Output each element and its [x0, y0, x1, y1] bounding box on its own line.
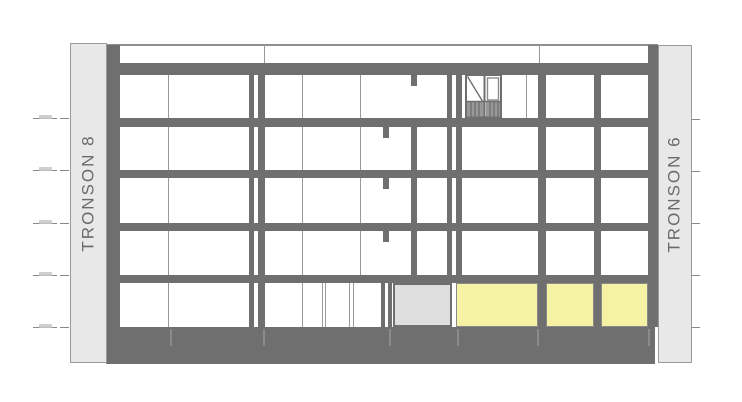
level-tick	[60, 275, 69, 276]
level-tick	[692, 171, 700, 172]
column	[258, 63, 265, 327]
level-tick	[60, 223, 69, 224]
floor-slab	[107, 275, 658, 283]
tronson-6-band: TRONSON 6	[658, 45, 692, 363]
level-tick	[692, 223, 700, 224]
door-jamb	[349, 283, 350, 327]
base-wall	[106, 327, 655, 364]
level-label-smudge	[39, 272, 52, 276]
column	[594, 63, 601, 327]
window-mullion	[168, 231, 169, 275]
door-jamb	[353, 283, 354, 327]
base-joint	[170, 329, 172, 346]
door-detail	[465, 74, 502, 119]
window-mullion	[168, 75, 169, 118]
column	[411, 118, 417, 283]
base-joint	[389, 329, 391, 346]
window-mullion	[168, 178, 169, 223]
window-mullion	[168, 127, 169, 170]
window-mullion	[302, 178, 303, 223]
floor-slab	[107, 118, 658, 127]
window-mullion	[302, 283, 303, 327]
highlighted-panel	[546, 283, 594, 327]
level-label-smudge	[39, 115, 52, 119]
column	[538, 63, 546, 327]
level-tick	[692, 119, 700, 120]
level-tick	[60, 118, 69, 119]
level-tick	[692, 275, 700, 276]
column	[107, 45, 120, 327]
partition-stub	[383, 231, 389, 242]
level-label-smudge	[39, 167, 52, 171]
floor-slab	[107, 223, 658, 231]
level-tick	[692, 327, 700, 328]
level-tick	[60, 170, 69, 171]
floor-slab	[107, 63, 658, 75]
parapet-joint	[264, 45, 265, 64]
window-mullion	[302, 75, 303, 118]
window-mullion	[168, 283, 169, 327]
base-joint	[263, 329, 265, 346]
roof-line	[107, 44, 658, 46]
tronson-8-label: TRONSON 8	[79, 134, 99, 251]
door-jamb	[322, 283, 323, 327]
section-drawing: TRONSON 8 TRONSON 6	[0, 0, 742, 402]
window-mullion	[302, 127, 303, 170]
window-mullion	[360, 75, 361, 118]
service-panel	[393, 283, 452, 327]
partition-stub	[383, 178, 389, 189]
tronson-8-band: TRONSON 8	[70, 43, 107, 363]
tronson-6-label: TRONSON 6	[665, 135, 685, 252]
floor-slab	[107, 170, 658, 178]
partition-stub	[383, 127, 389, 138]
level-label-smudge	[39, 324, 52, 328]
window-mullion	[360, 231, 361, 275]
window-mullion	[526, 75, 527, 118]
highlighted-panel	[456, 283, 538, 327]
wall-section	[388, 283, 392, 327]
window-mullion	[360, 178, 361, 223]
level-label-smudge	[39, 220, 52, 224]
base-joint	[457, 329, 459, 346]
level-tick	[60, 327, 69, 328]
window-mullion	[360, 127, 361, 170]
wall-section	[381, 283, 385, 327]
column	[648, 45, 658, 327]
parapet-joint	[539, 45, 540, 64]
column	[249, 63, 254, 327]
door-icon	[465, 74, 502, 119]
base-joint	[648, 329, 650, 346]
window-mullion	[302, 231, 303, 275]
base-joint	[537, 329, 539, 346]
partition-stub	[411, 75, 417, 86]
highlighted-panel	[601, 283, 648, 327]
door-jamb	[325, 283, 326, 327]
